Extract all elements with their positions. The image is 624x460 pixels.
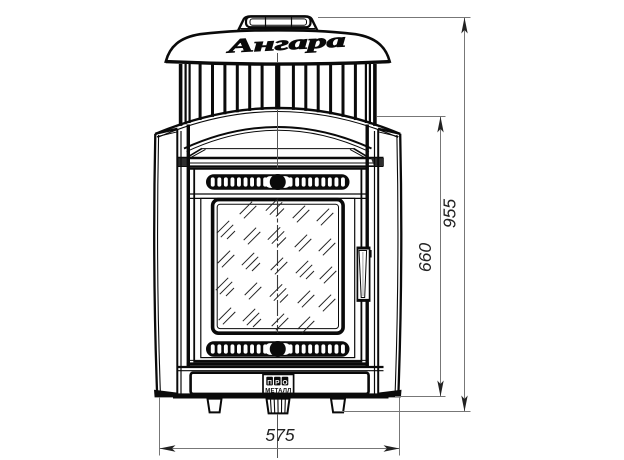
svg-text:Р: Р bbox=[275, 380, 280, 387]
svg-text:П: П bbox=[267, 380, 272, 387]
svg-text:660: 660 bbox=[415, 243, 435, 272]
svg-text:575: 575 bbox=[265, 425, 294, 445]
svg-text:955: 955 bbox=[440, 199, 460, 228]
svg-text:О: О bbox=[282, 380, 287, 387]
